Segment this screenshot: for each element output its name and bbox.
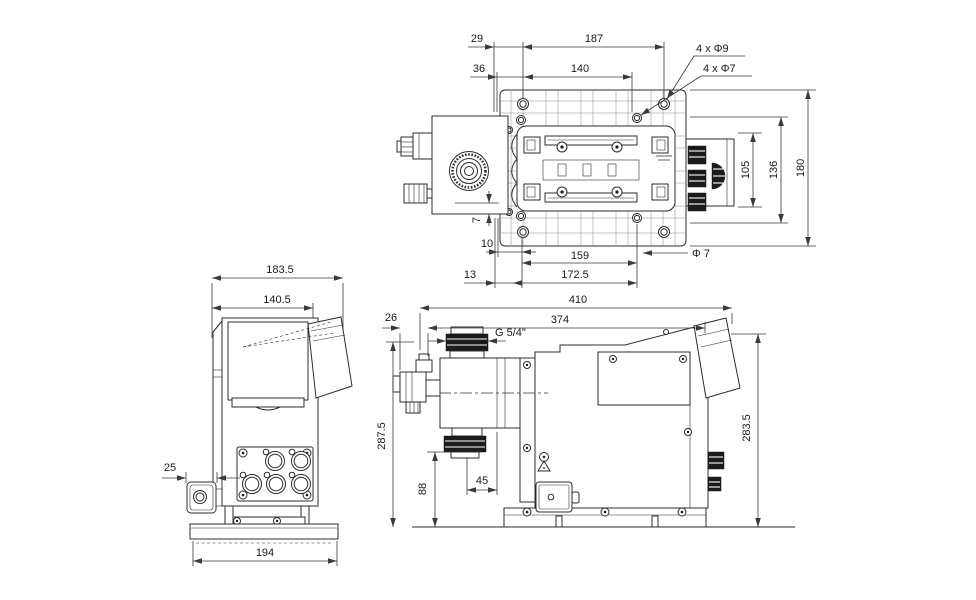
- dim-label-172-5: 172.5: [561, 269, 589, 281]
- connection-plate: [237, 447, 313, 501]
- callout-4x-phi7: 4 x Φ7: [703, 63, 736, 75]
- pump-body-front: [187, 317, 352, 543]
- callout-4x-phi9: 4 x Φ9: [696, 43, 729, 55]
- dim-label-410: 410: [569, 294, 587, 306]
- vent-knob: [404, 184, 432, 203]
- top-view: 29 187 36 140 4 x Φ9 4 x Φ7 105 136 1: [397, 33, 816, 288]
- dim-label-136: 136: [768, 161, 780, 179]
- dim-label-283-5: 283.5: [741, 414, 753, 442]
- dim-label-45: 45: [476, 475, 488, 487]
- dimensional-drawing-page: 29 187 36 140 4 x Φ9 4 x Φ7 105 136 1: [0, 0, 976, 600]
- control-cube: [228, 317, 352, 410]
- pump-body-side: [520, 318, 740, 512]
- suction-valve: [444, 428, 486, 458]
- dim-label-36: 36: [473, 63, 485, 75]
- dim-label-159: 159: [571, 250, 589, 262]
- discharge-valve: [446, 327, 488, 358]
- dim-label-26: 26: [385, 312, 397, 324]
- dosing-head-top: [686, 139, 734, 211]
- dim-label-10: 10: [481, 238, 493, 250]
- thread-size-label: G 5/4": [495, 327, 526, 339]
- wall-bracket: [187, 482, 222, 513]
- dim-label-7: 7: [471, 217, 483, 223]
- side-view: 410 374 26 G 5/4" 287.5 88 45 283.5: [376, 294, 795, 527]
- dim-label-180: 180: [795, 159, 807, 177]
- adjustment-knob: [450, 152, 489, 191]
- dim-label-140-5: 140.5: [263, 294, 291, 306]
- side-connectors: [708, 452, 724, 491]
- dim-label-187: 187: [585, 33, 603, 45]
- dim-label-140: 140: [571, 63, 589, 75]
- dim-label-194: 194: [256, 547, 274, 559]
- motor-assembly: [397, 116, 508, 214]
- dim-label-29: 29: [471, 33, 483, 45]
- dim-label-88: 88: [417, 483, 429, 495]
- cable-gland: [397, 133, 432, 159]
- base-side: [504, 508, 706, 527]
- dim-label-287-5: 287.5: [376, 422, 388, 450]
- dim-label-105: 105: [740, 161, 752, 179]
- dim-label-374: 374: [551, 314, 569, 326]
- front-view: 183.5 140.5: [162, 264, 352, 566]
- dim-label-25: 25: [164, 462, 176, 474]
- technical-drawing: 29 187 36 140 4 x Φ9 4 x Φ7 105 136 1: [0, 0, 976, 600]
- callout-dia7: Φ 7: [692, 248, 710, 260]
- pump-mechanism: [506, 114, 676, 223]
- dim-label-13: 13: [464, 269, 476, 281]
- dim-label-183-5: 183.5: [266, 264, 294, 276]
